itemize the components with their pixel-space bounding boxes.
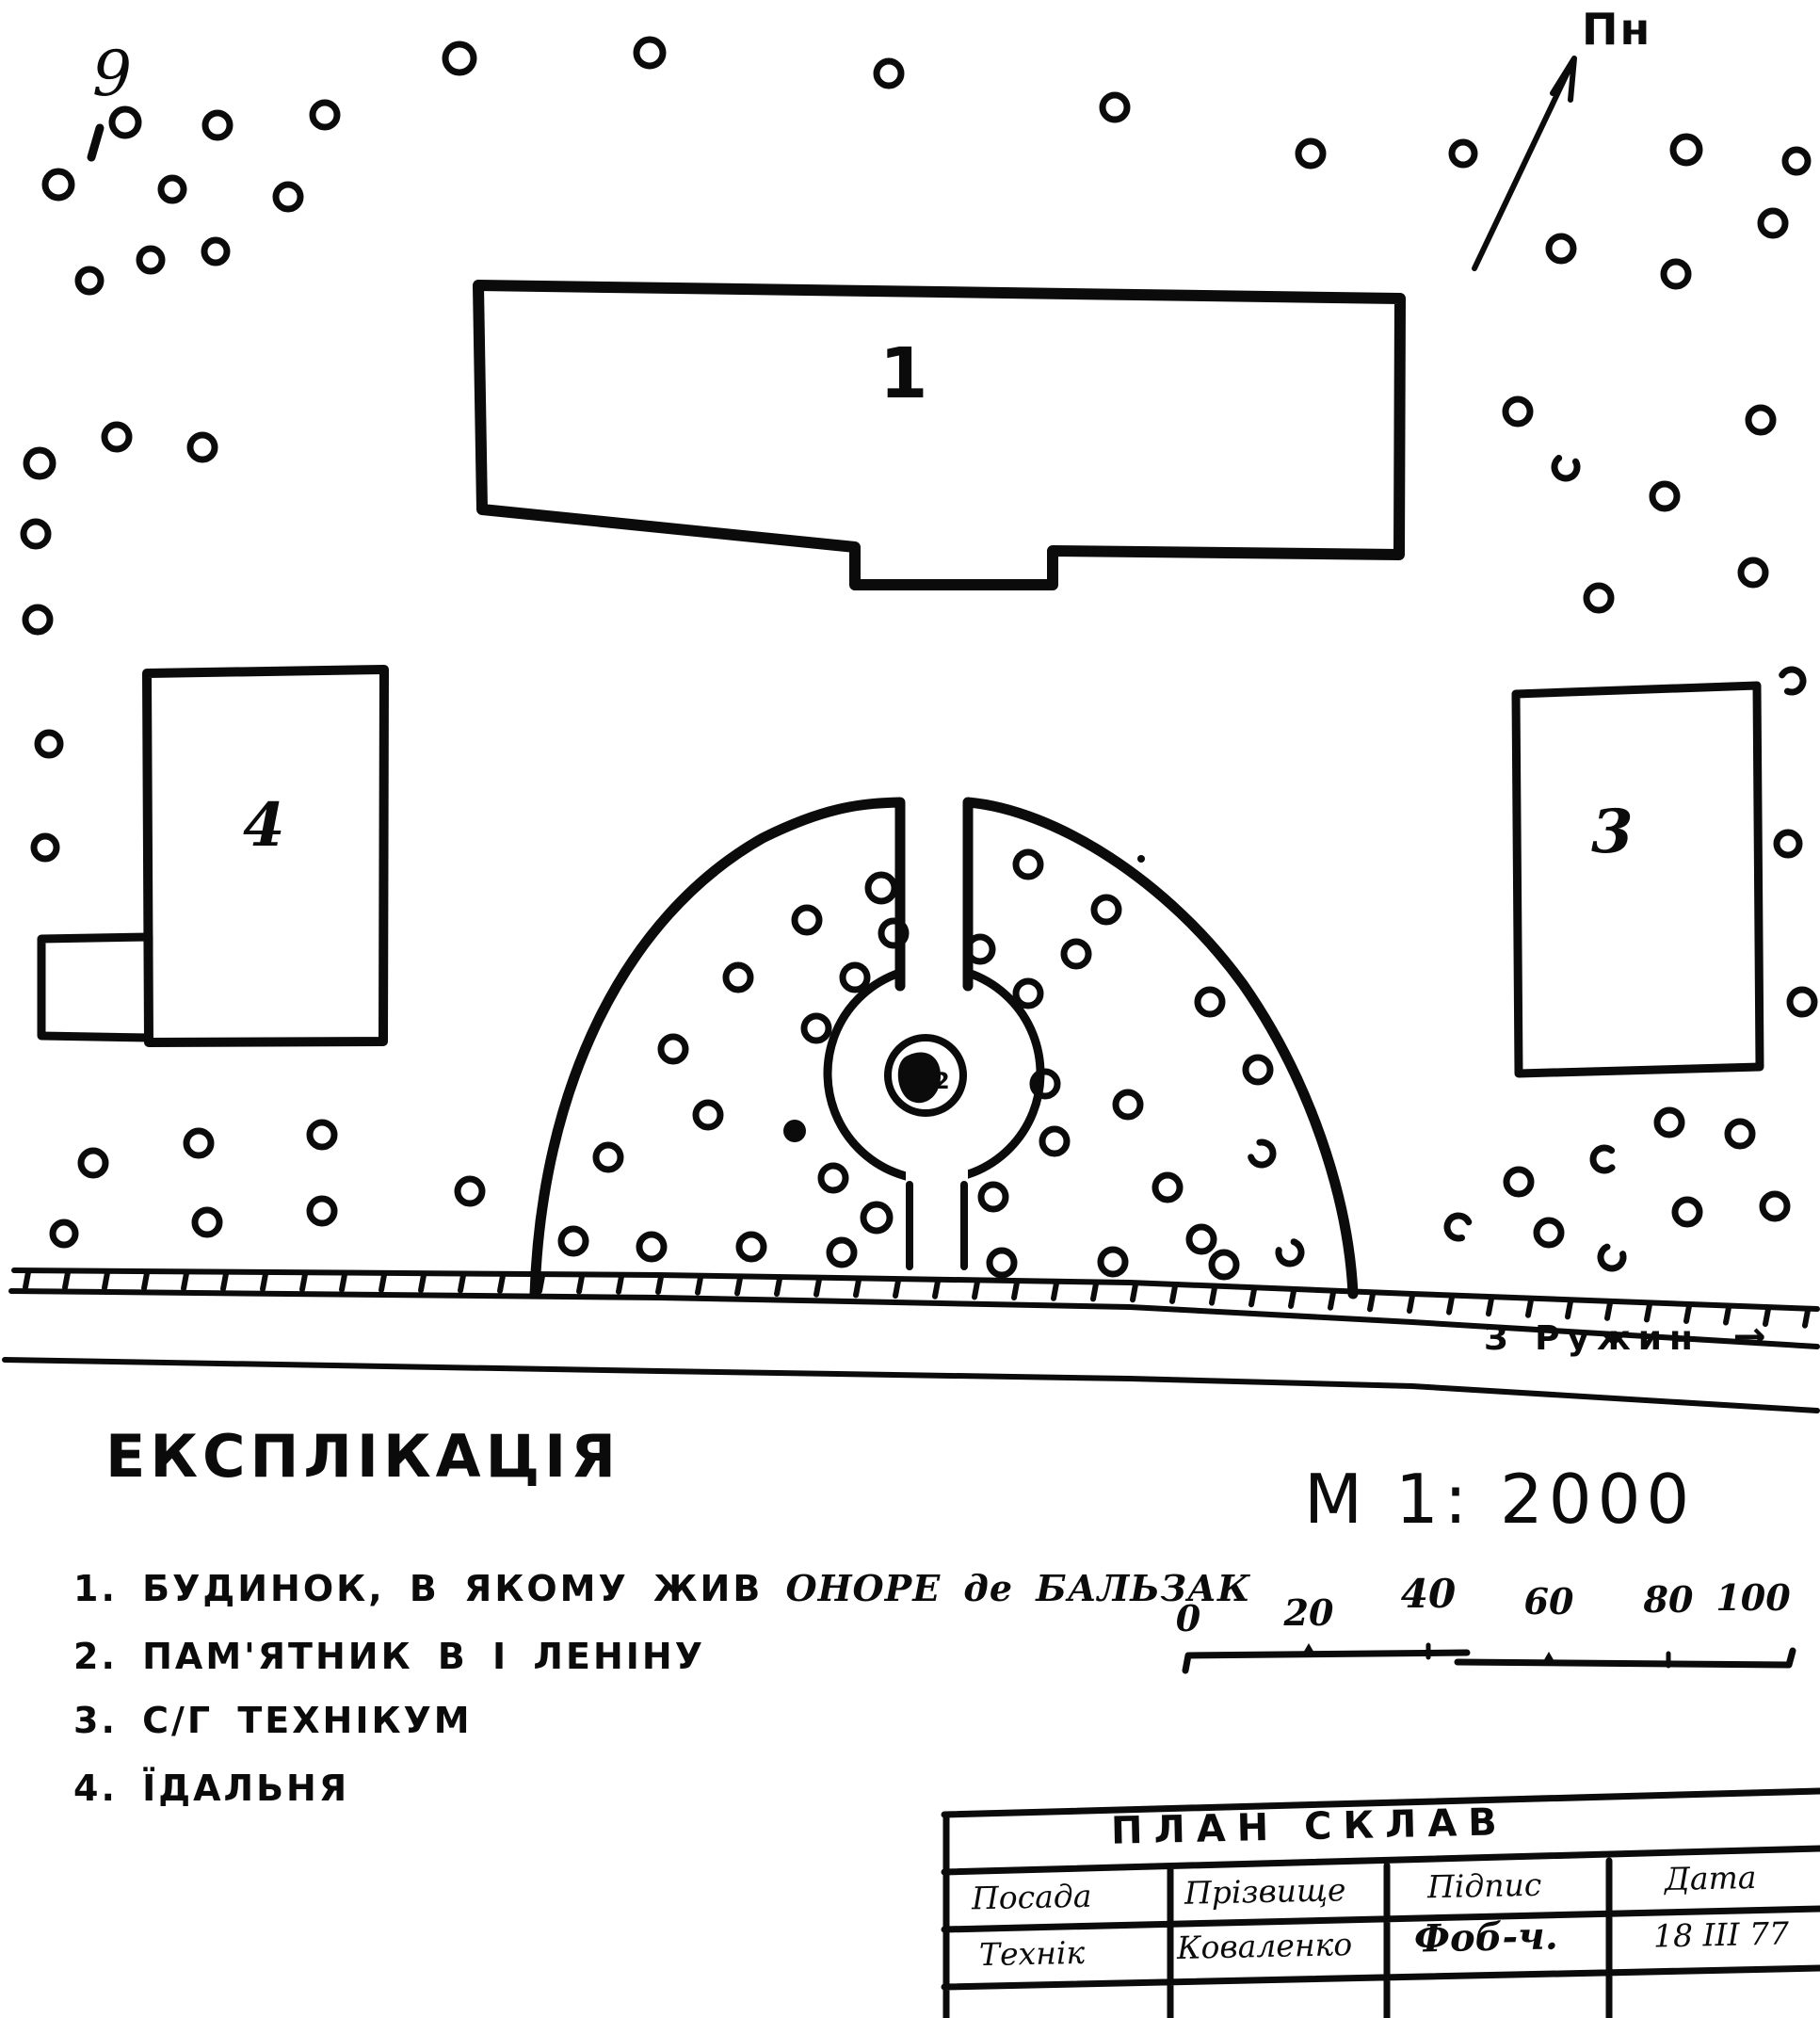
tree-icon — [795, 908, 819, 932]
road-hatch-tick — [460, 1275, 463, 1290]
tree-icon — [78, 269, 101, 292]
scale-bar — [1185, 1651, 1793, 1671]
legend-item-3: 3. С/Г ТЕХНІКУМ — [73, 1703, 473, 1738]
road-hatch-tick — [1014, 1283, 1017, 1298]
legend-item-number: 1. — [73, 1568, 118, 1609]
tree-icon — [34, 836, 56, 859]
ring-gap-top — [904, 957, 970, 991]
tree-icon — [1763, 1194, 1787, 1219]
tree-icon — [445, 44, 474, 73]
tree-icon — [1790, 990, 1814, 1014]
tree-icon — [596, 1145, 620, 1170]
legend-item-number: 2. — [73, 1636, 118, 1677]
legend-item-2: 2. ПАМ'ЯТНИК В І ЛЕНІНУ — [73, 1639, 705, 1674]
road-hatch-tick — [579, 1276, 582, 1291]
tree-icon — [25, 607, 50, 632]
tree-icon — [112, 109, 138, 136]
road-hatch-tick — [698, 1278, 701, 1293]
tree-icon — [1212, 1252, 1236, 1277]
tree-icon — [726, 965, 750, 990]
titleblock-position-value: Технік — [979, 1937, 1086, 1970]
tree-icon — [1675, 1200, 1699, 1224]
tree-icon — [313, 103, 337, 127]
building-3-number: 3 — [1591, 802, 1634, 863]
titleblock-col-date: Дата — [1665, 1862, 1757, 1895]
road-direction-arrow-icon: → — [1732, 1313, 1765, 1359]
tree-icon — [1549, 236, 1573, 261]
park-path-lower — [910, 1185, 964, 1267]
road-hatch-tick — [1093, 1283, 1096, 1299]
legend-item-text: ЇДАЛЬНЯ — [142, 1768, 349, 1809]
legend-title: ЕКСПЛІКАЦІЯ — [105, 1428, 620, 1486]
tree-icon — [1728, 1122, 1752, 1146]
tree-icon — [783, 1120, 806, 1142]
road-hatch-tick — [619, 1277, 621, 1292]
road-hatch-tick — [263, 1274, 266, 1289]
road-hatch-tick — [421, 1275, 424, 1290]
tree-icon — [1137, 855, 1145, 863]
road-hatch-tick — [1409, 1296, 1412, 1311]
tree-icon — [139, 249, 162, 271]
titleblock-col-surname: Прізвище — [1184, 1874, 1346, 1909]
tree-icon — [1452, 142, 1474, 165]
tree-icon — [804, 1016, 829, 1041]
road-hatch-tick — [895, 1281, 898, 1296]
tree-icon — [1657, 1110, 1682, 1135]
site-plan-page: Пн 9 1 2 3 4 З Ружин → ЕКСПЛІКАЦІЯ 1. БУ… — [0, 0, 1820, 2018]
scale-tick-80: 80 — [1631, 1582, 1706, 1618]
tree-icon — [1016, 852, 1040, 877]
stray-stroke — [91, 128, 100, 157]
tree-icon — [276, 185, 300, 209]
road-hatch-tick — [1568, 1301, 1570, 1316]
tree-icon — [821, 1166, 846, 1190]
tree-icon — [26, 450, 53, 476]
tree-icon — [458, 1179, 482, 1203]
stray-mark-nine: 9 — [92, 43, 132, 105]
legend-item-4: 4. ЇДАЛЬНЯ — [73, 1770, 349, 1806]
road-hatch-tick — [1449, 1298, 1452, 1313]
tree-icon — [1198, 990, 1222, 1014]
tree-icon — [1101, 1250, 1125, 1274]
road-edge-bottom — [5, 1360, 1817, 1411]
tree-icon — [1506, 1170, 1531, 1194]
titleblock-col-signature: Підпис — [1427, 1869, 1542, 1903]
titleblock-header: ПЛАН СКЛАВ — [1111, 1803, 1509, 1850]
tree-icon — [1551, 452, 1582, 483]
road-hatch-tick — [777, 1279, 780, 1294]
tree-icon — [696, 1103, 720, 1127]
road-hatch-tick — [974, 1282, 977, 1297]
road-hatch-tick — [302, 1274, 305, 1289]
tree-icon — [739, 1235, 764, 1259]
road-hatch-tick — [935, 1282, 938, 1297]
road-hatch-tick — [65, 1272, 68, 1287]
tree-icon — [868, 875, 894, 901]
tree-icon — [636, 40, 663, 66]
road-label: З Ружин → — [1484, 1316, 1766, 1356]
titleblock-signature-value: Фоб-ч. — [1414, 1917, 1558, 1958]
tree-icon — [1155, 1175, 1180, 1200]
tree-icon — [190, 435, 215, 460]
road-hatch-tick — [1251, 1289, 1254, 1304]
building-4-annex-outline — [41, 937, 149, 1038]
road-hatch-tick — [816, 1280, 819, 1295]
road-hatch-tick — [184, 1273, 186, 1288]
tree-icon — [1276, 1238, 1305, 1267]
scale-tick-0: 0 — [1151, 1601, 1226, 1637]
titleblock-date-value: 18 ІІІ 77 — [1653, 1917, 1790, 1951]
road-hatch-tick — [1054, 1283, 1056, 1299]
building-1-outline — [478, 285, 1400, 585]
tree-icon — [1673, 137, 1699, 163]
road-hatch-tick — [1291, 1291, 1294, 1306]
tree-icon — [186, 1131, 211, 1155]
road-hatch-tick — [737, 1278, 740, 1293]
tree-icon — [1248, 1140, 1275, 1167]
titleblock-col-position: Посада — [972, 1881, 1092, 1914]
tree-icon — [1785, 150, 1808, 172]
tree-icon — [161, 178, 184, 201]
tree-icon — [195, 1210, 219, 1235]
tree-icon — [863, 1204, 890, 1231]
road-hatch-tick — [1370, 1294, 1373, 1309]
legend-item-text: С/Г ТЕХНІКУМ — [142, 1700, 473, 1741]
road-hatch-tick — [540, 1276, 542, 1291]
map-scale: М 1: 2000 — [1304, 1465, 1695, 1533]
tree-icon — [310, 1199, 334, 1223]
road-hatch-tick — [223, 1274, 226, 1289]
road-hatch-tick — [1805, 1311, 1808, 1326]
legend-item-text: ПАМ'ЯТНИК В І ЛЕНІНУ — [142, 1636, 705, 1677]
tree-icon — [1094, 897, 1119, 922]
tree-icon — [204, 240, 227, 263]
tree-icon — [205, 113, 230, 137]
road-hatch-tick — [105, 1273, 107, 1288]
scale-tick-100: 100 — [1715, 1580, 1791, 1616]
tree-icon — [1588, 1143, 1620, 1175]
tree-icon — [1741, 560, 1765, 585]
scale-tick-40: 40 — [1391, 1574, 1466, 1614]
tree-icon — [639, 1235, 664, 1259]
road-hatch-tick — [1330, 1293, 1333, 1308]
tree-icon — [1298, 141, 1323, 166]
tree-icon — [1506, 399, 1530, 424]
legend-item-text: БУДИНОК, В ЯКОМУ ЖИВ — [142, 1568, 763, 1609]
tree-icon — [561, 1229, 586, 1253]
tree-icon — [1189, 1227, 1214, 1251]
tree-icon — [1748, 408, 1773, 432]
road-hatch-tick — [144, 1273, 147, 1288]
tree-icon — [105, 425, 129, 449]
tree-icon — [45, 171, 72, 198]
ring-gap-bottom — [906, 1164, 968, 1188]
tree-icon — [1598, 1243, 1626, 1271]
tree-icon — [990, 1251, 1014, 1275]
road-destination: З Ружин — [1484, 1319, 1700, 1358]
tree-icon — [1777, 832, 1799, 855]
road-hatch-tick — [25, 1272, 28, 1287]
road-hatch-tick — [1172, 1286, 1175, 1301]
tree-icon — [53, 1222, 75, 1245]
tree-icon — [1103, 95, 1127, 120]
north-label: Пн — [1582, 8, 1651, 51]
tree-icon — [1537, 1220, 1561, 1245]
tree-icon — [24, 522, 48, 546]
legend-item-1: 1. БУДИНОК, В ЯКОМУ ЖИВ ОНОРЕ де БАЛЬЗАК — [73, 1571, 1251, 1606]
building-3-outline — [1516, 686, 1760, 1074]
tree-icon — [843, 965, 867, 990]
scale-tick-60: 60 — [1511, 1584, 1586, 1620]
tree-icon — [1777, 666, 1808, 697]
scale-tick-20: 20 — [1271, 1595, 1346, 1631]
road-hatch-tick — [500, 1276, 503, 1291]
road-hatch-tick — [1528, 1300, 1531, 1316]
tree-icon — [310, 1122, 334, 1147]
monument-number: 2 — [934, 1070, 950, 1092]
tree-icon — [1444, 1213, 1473, 1241]
building-1-number: 1 — [879, 339, 928, 409]
tree-icon — [1246, 1057, 1270, 1082]
road-hatch-tick — [1212, 1288, 1215, 1303]
tree-icon — [1064, 942, 1088, 966]
road-hatch-tick — [342, 1275, 345, 1290]
building-4-number: 4 — [243, 796, 285, 856]
tree-icon — [877, 61, 901, 86]
tree-icon — [1652, 484, 1677, 509]
tree-icon — [1664, 262, 1688, 286]
legend-item-number: 4. — [73, 1768, 118, 1809]
tree-icon — [1016, 981, 1040, 1006]
tree-icon — [981, 1185, 1006, 1209]
road-hatch-tick — [381, 1275, 384, 1290]
tree-icon — [1042, 1129, 1067, 1154]
tree-icon — [38, 733, 60, 755]
road-hatch-tick — [1133, 1284, 1135, 1300]
tree-icon — [81, 1151, 105, 1175]
tree-icon — [1586, 586, 1611, 610]
legend-item-number: 3. — [73, 1700, 118, 1741]
road-hatch-tick — [658, 1277, 661, 1292]
titleblock-surname-value: Коваленко — [1177, 1929, 1353, 1963]
park-outline-left — [535, 802, 900, 1294]
tree-icon — [1116, 1092, 1140, 1117]
tree-icon — [661, 1037, 685, 1061]
road-hatch-tick — [856, 1280, 859, 1295]
tree-icon — [1761, 211, 1785, 235]
road-hatch-tick — [1489, 1299, 1491, 1314]
tree-icon — [829, 1240, 854, 1265]
